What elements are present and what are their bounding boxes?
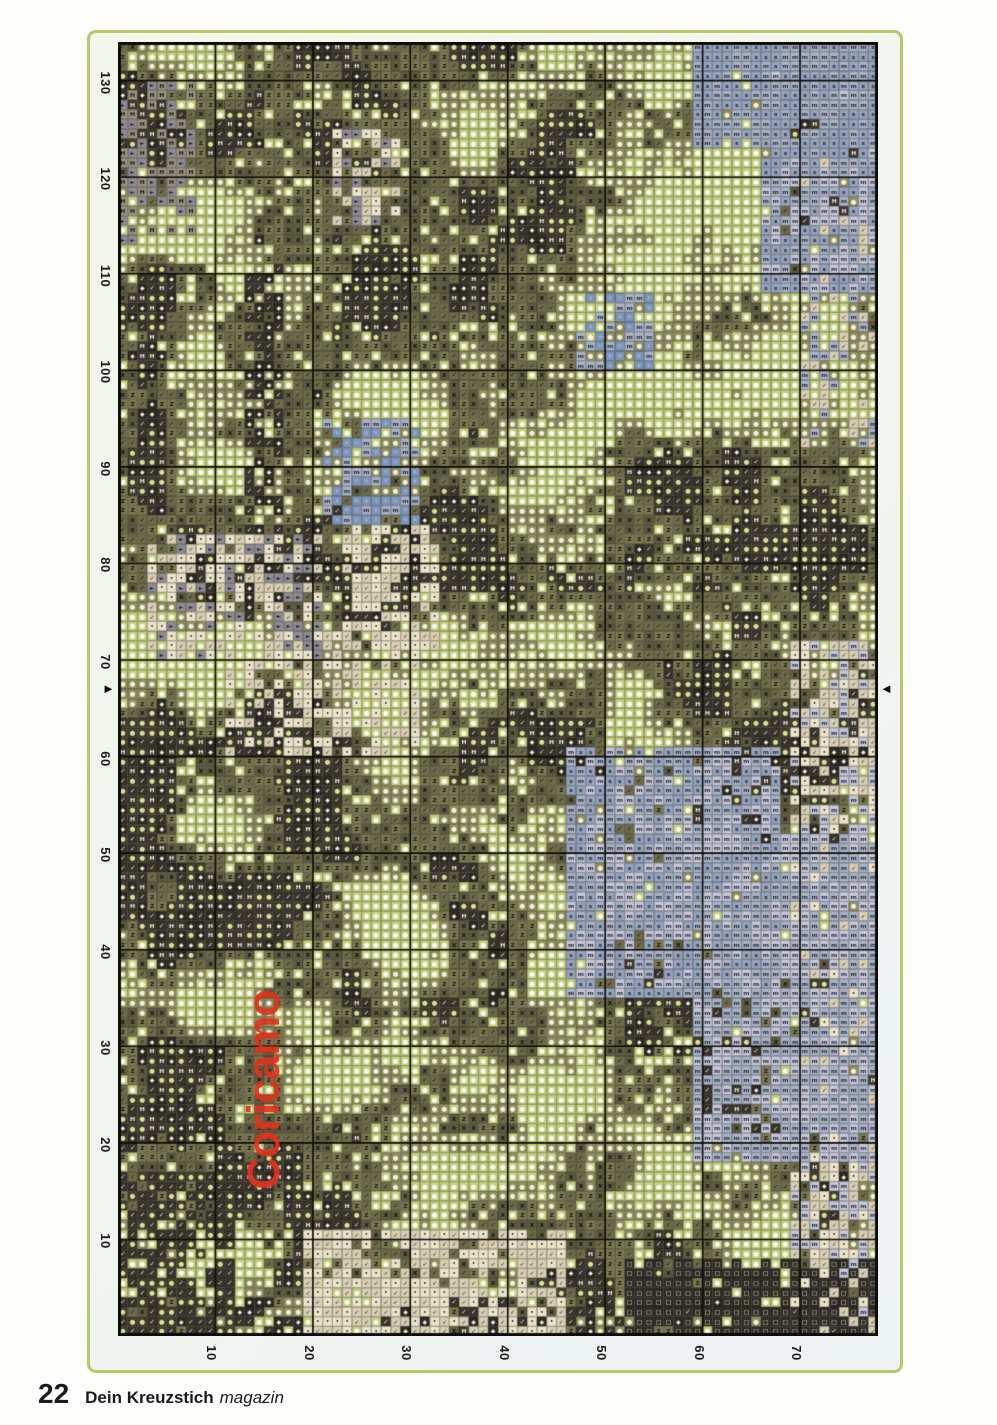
col-label-40: 40 <box>492 1340 518 1366</box>
row-label-60: 60 <box>93 746 119 772</box>
magazine-title: Dein Kreuzstich <box>85 1388 213 1408</box>
row-label-50: 50 <box>93 842 119 868</box>
row-label-20: 20 <box>93 1132 119 1158</box>
row-label-120: 120 <box>93 166 119 192</box>
col-label-10: 10 <box>199 1340 225 1366</box>
row-label-80: 80 <box>93 552 119 578</box>
center-row-marker-right-icon: ◄ <box>880 682 893 695</box>
row-label-110: 110 <box>93 263 119 289</box>
row-label-90: 90 <box>93 456 119 482</box>
row-label-30: 30 <box>93 1035 119 1061</box>
watermark-text: Coricamo <box>239 970 289 1210</box>
row-label-70: 70 <box>93 649 119 675</box>
page-footer: 22 Dein Kreuzstich magazin <box>38 1378 284 1410</box>
col-label-30: 30 <box>394 1340 420 1366</box>
page-number: 22 <box>38 1378 69 1410</box>
magazine-title-suffix: magazin <box>220 1388 284 1408</box>
col-label-50: 50 <box>589 1340 615 1366</box>
col-label-70: 70 <box>784 1340 810 1366</box>
row-label-40: 40 <box>93 939 119 965</box>
col-label-20: 20 <box>297 1340 323 1366</box>
center-row-marker-left-icon: ► <box>102 682 115 695</box>
cross-stitch-chart-canvas <box>118 42 878 1336</box>
magazine-page: 130120110100908070605040302010 102030405… <box>0 0 997 1425</box>
row-label-100: 100 <box>93 359 119 385</box>
row-label-130: 130 <box>93 70 119 96</box>
row-label-10: 10 <box>93 1228 119 1254</box>
col-label-60: 60 <box>687 1340 713 1366</box>
